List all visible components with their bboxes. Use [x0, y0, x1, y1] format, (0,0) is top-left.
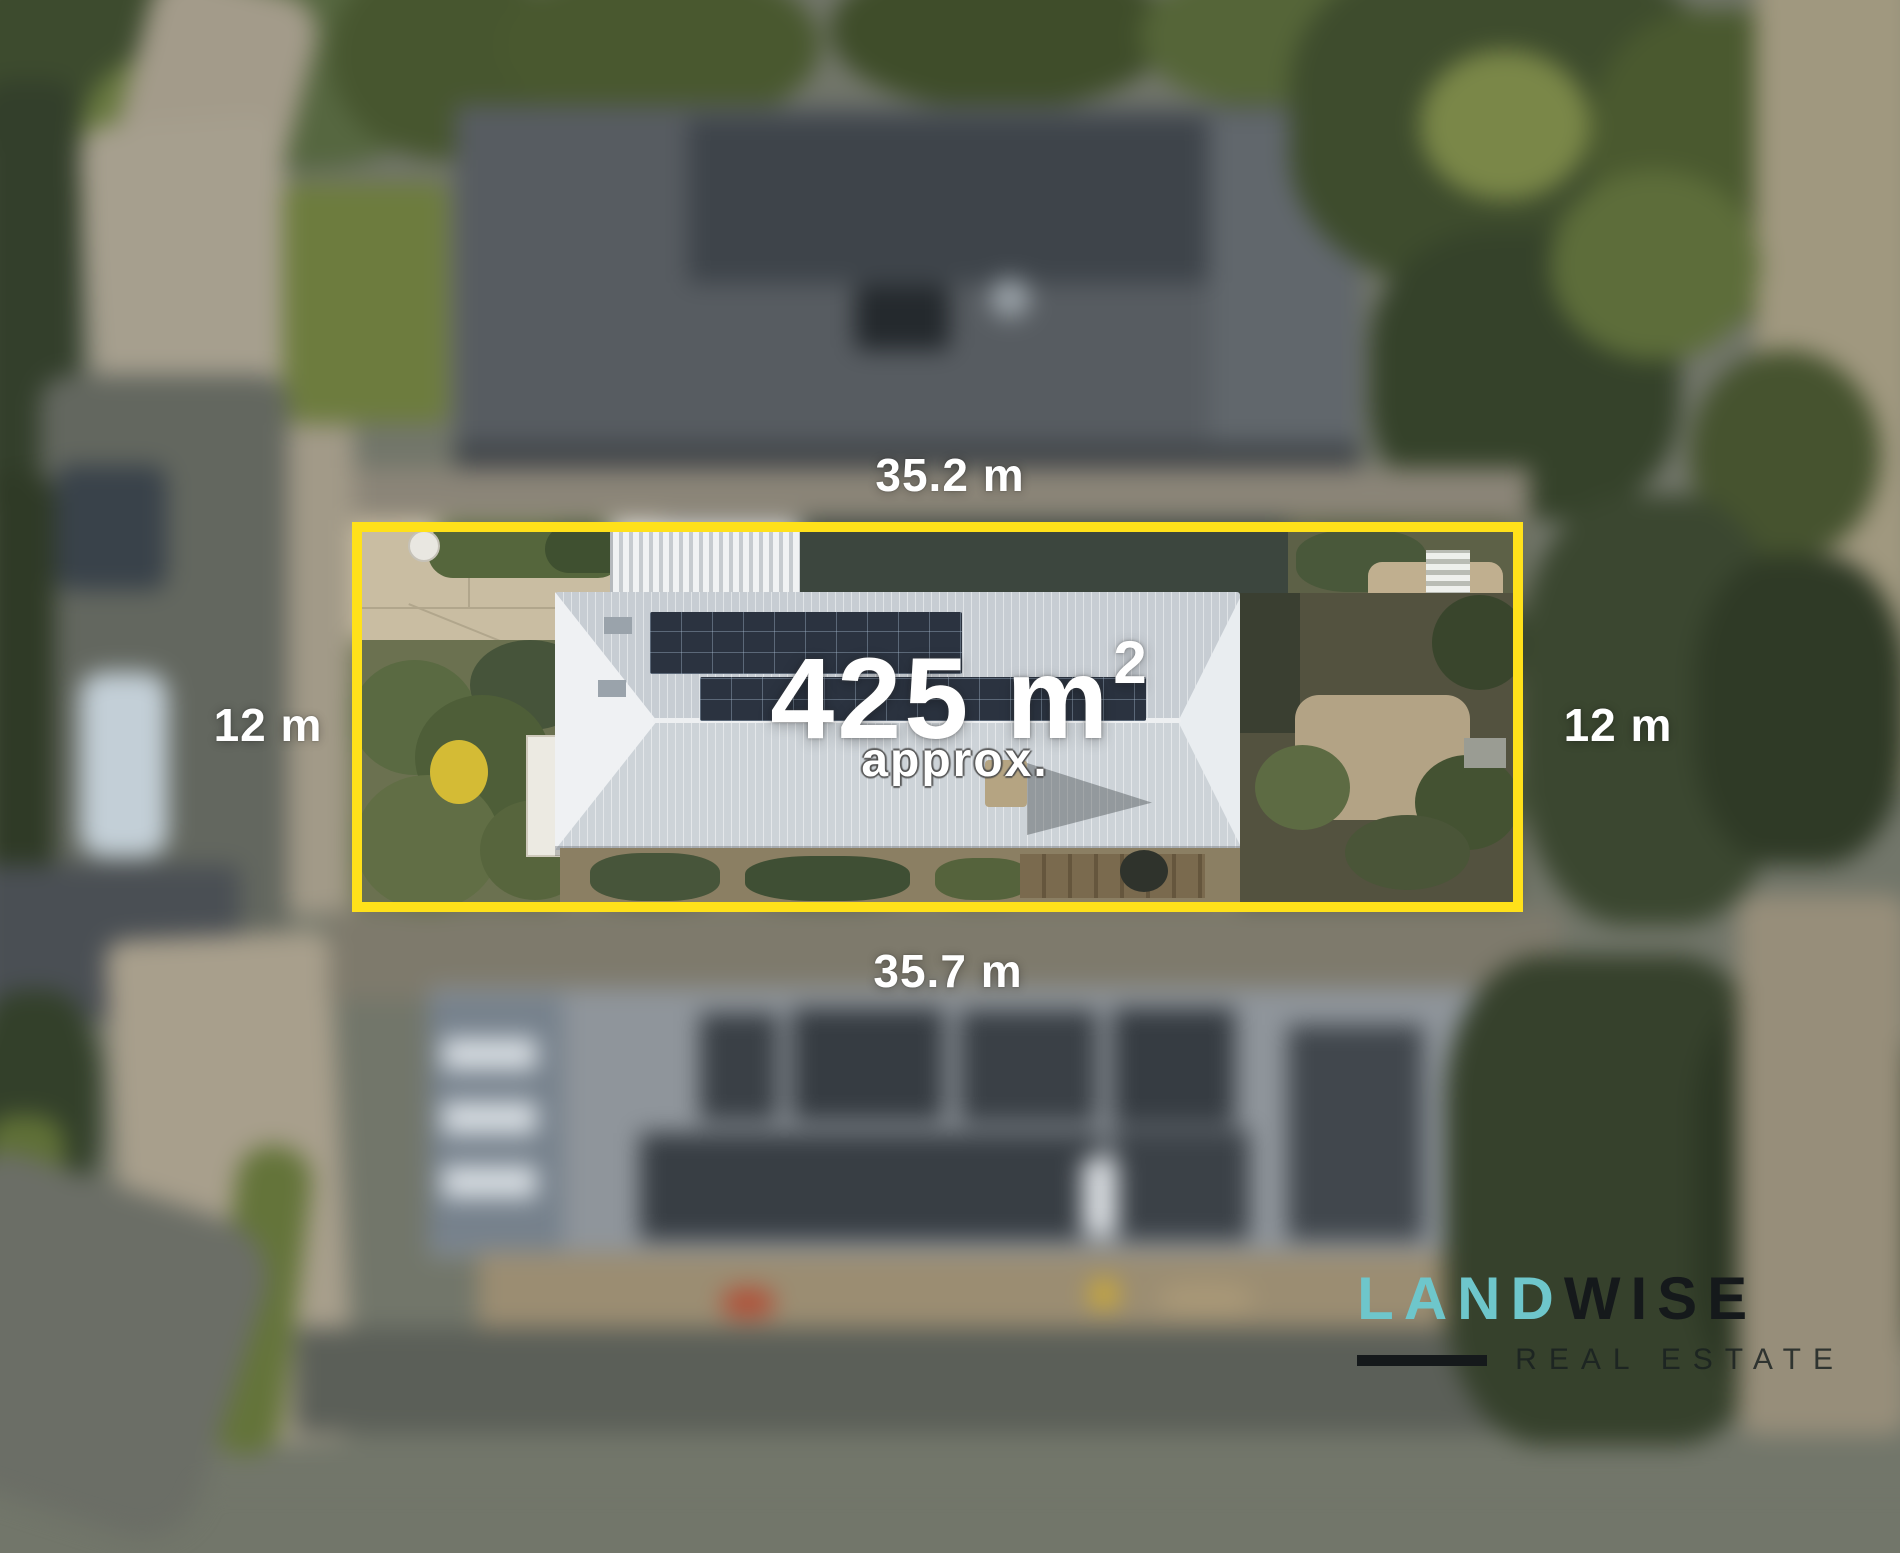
bottom-width-label: 35.7 m [873, 944, 1022, 998]
agency-logo: LANDWISE REAL ESTATE [1357, 1264, 1845, 1377]
right-depth-label: 12 m [1564, 698, 1673, 752]
agency-logo-wordmark: LANDWISE [1357, 1264, 1845, 1333]
logo-land-text: LAND [1357, 1265, 1564, 1332]
agency-logo-tagline-row: REAL ESTATE [1357, 1343, 1845, 1377]
area-exponent: 2 [1113, 629, 1149, 696]
top-width-label: 35.2 m [875, 448, 1024, 502]
logo-tagline: REAL ESTATE [1515, 1343, 1845, 1377]
area-qualifier: approx. [861, 733, 1048, 788]
logo-bar [1357, 1355, 1487, 1366]
left-depth-label: 12 m [214, 698, 323, 752]
logo-wise-text: WISE [1564, 1265, 1757, 1332]
